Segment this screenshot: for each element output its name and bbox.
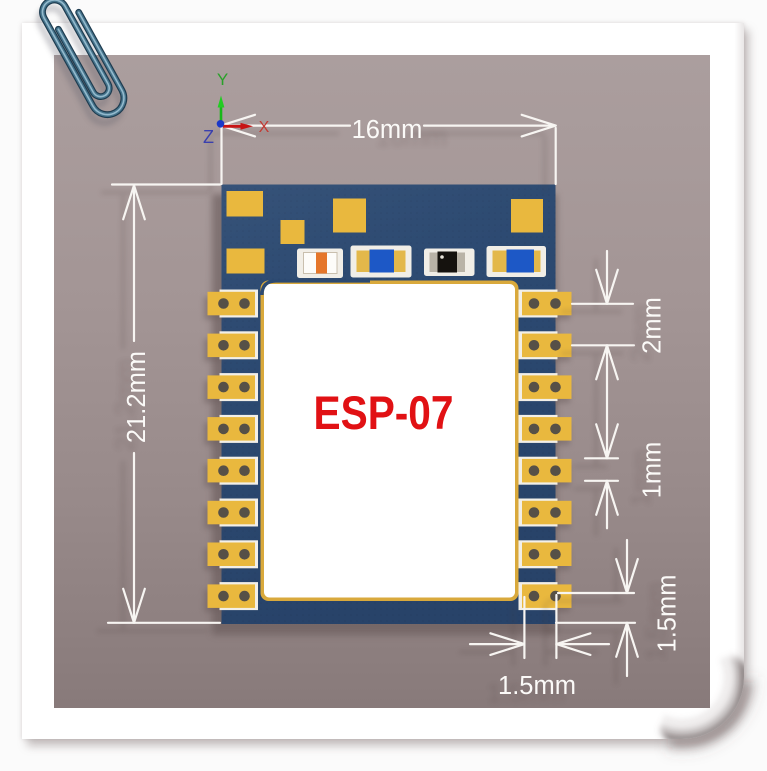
svg-text:X: X <box>259 119 270 136</box>
svg-text:ESP-07: ESP-07 <box>314 386 454 439</box>
svg-text:1.5mm: 1.5mm <box>653 575 681 653</box>
svg-text:16mm: 16mm <box>352 116 423 144</box>
svg-text:1mm: 1mm <box>638 442 666 499</box>
svg-text:2mm: 2mm <box>638 297 666 354</box>
svg-text:1.5mm: 1.5mm <box>498 672 576 700</box>
svg-text:21.2mm: 21.2mm <box>123 351 151 443</box>
svg-text:Y: Y <box>217 70 228 89</box>
svg-text:Z: Z <box>203 127 214 147</box>
